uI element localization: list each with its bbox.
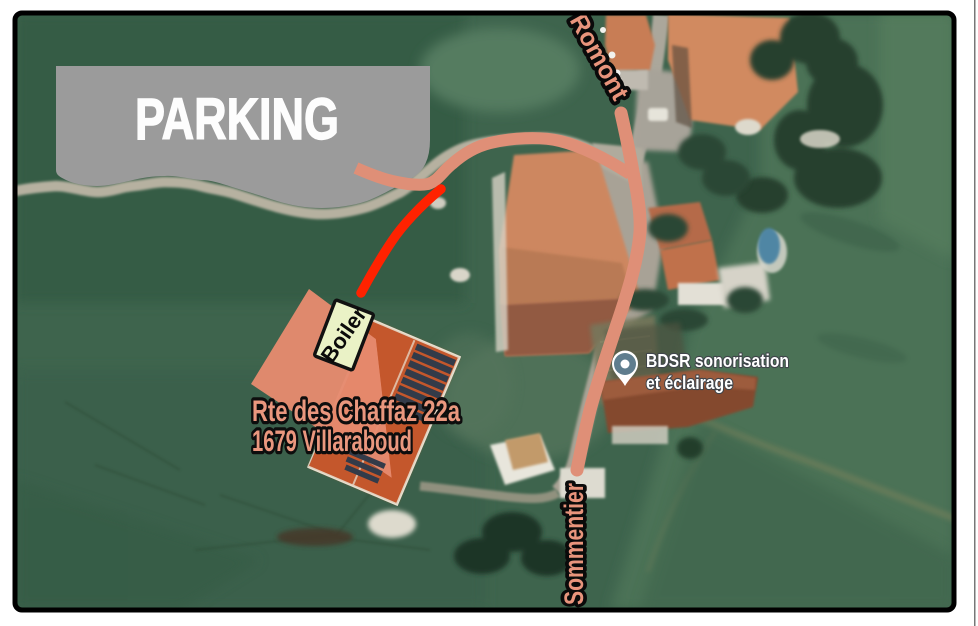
svg-text:PARKING: PARKING [135,87,339,152]
svg-text:et éclairage: et éclairage [646,372,733,393]
svg-text:BDSR sonorisation: BDSR sonorisation [646,350,789,371]
svg-text:1679 Villaraboud: 1679 Villaraboud [252,425,412,458]
svg-text:Sommentier: Sommentier [559,483,589,605]
svg-text:Rte des Chaffaz 22a: Rte des Chaffaz 22a [252,395,460,428]
